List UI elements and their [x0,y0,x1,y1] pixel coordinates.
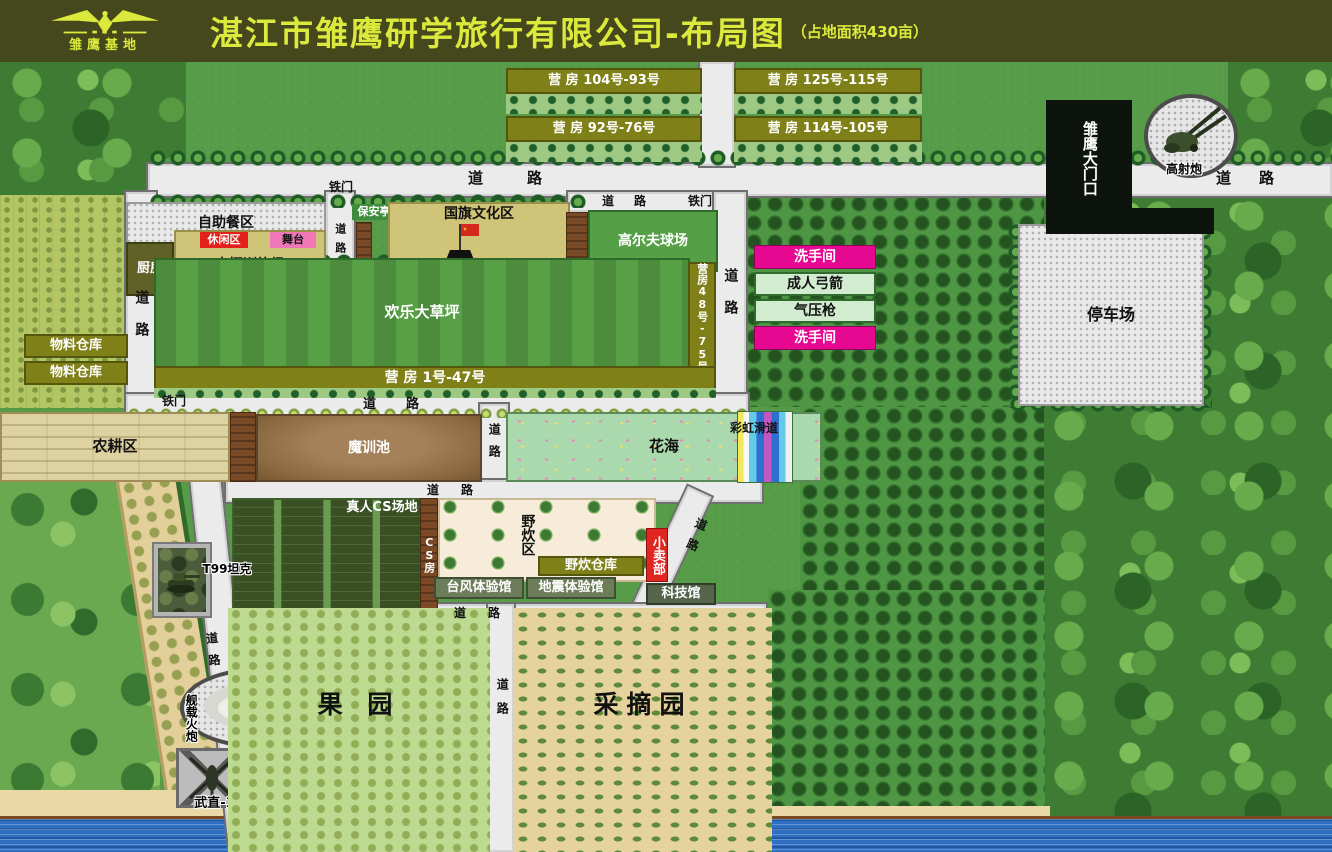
page-subtitle: （占地面积430亩） [792,21,928,42]
road-label-golf: 道路 [590,194,678,209]
china-flag-icon [438,222,482,262]
cs-field-label: 真人CS场地 [330,500,434,516]
stage: 舞台 [270,232,316,248]
road-label-gate: 道路 [1204,168,1314,190]
main-gate: 雏鹰大门口 [1046,100,1132,216]
orchard-rows-mid [800,407,1044,590]
material-store-2: 物料仓库 [24,361,128,385]
road-label-belowlawn: 道路 [348,396,464,413]
road-label-mid: 道路 [484,414,504,476]
picking-garden: 采摘园 [514,608,772,852]
road-label-belowhalls: 道路 [444,605,532,621]
typhoon-hall: 台风体验馆 [434,577,524,599]
layout-map-screenshot: 营 房 104号-93号营 房 92号-76号营 房 125号-115号营 房 … [0,0,1332,852]
adult-archery: 成人弓箭 [754,272,876,296]
road-label-canteen: 道路 [330,214,350,270]
iron-gate-top: 铁门 [322,180,360,195]
barracks-bar-2: 营 房 92号-76号 [506,116,702,142]
wall-farm [230,412,256,482]
road-label-top: 道路 [452,168,602,190]
kiosk: 小卖部 [646,528,668,582]
iron-gate-golf: 铁门 [682,194,718,209]
farming-zone: 农耕区 [0,412,230,482]
earthquake-hall: 地震体验馆 [526,577,616,599]
orchard: 果 园 [228,608,490,852]
barracks-roof-3 [734,94,922,114]
gate-wall [1046,208,1214,234]
road-label-abovecs: 道路 [418,482,504,498]
leisure-zone: 休闲区 [200,232,248,248]
logo-text: 雏鹰基地 [69,39,141,52]
restroom-2: 洗手间 [754,326,876,350]
science-hall: 科技馆 [646,583,716,605]
rainbow-slide-label: 彩虹滑道 [712,420,796,436]
base-logo: 雏鹰基地 [0,10,210,52]
material-store-1: 物料仓库 [24,334,128,358]
page-title: 湛江市雏鹰研学旅行有限公司-布局图 [210,7,786,55]
barracks-1-47: 营 房 1号-47号 [154,366,716,390]
barracks-roof-1 [506,94,702,114]
barracks-bar-3: 营 房 125号-115号 [734,68,922,94]
orchard-rows-bottom [768,590,1045,835]
t99-tank-label: T99坦克 [194,562,260,576]
barracks-bar-1: 营 房 104号-93号 [506,68,702,94]
air-gun: 气压枪 [754,299,876,323]
barracks-roof-2 [506,142,702,162]
base-map: 营 房 104号-93号营 房 92号-76号营 房 125号-115号营 房 … [0,0,1332,852]
naval-gun-label: 舰载火炮 [182,688,200,748]
happy-lawn: 欢乐大草坪 [154,258,690,368]
road-label-rightcol: 道路 [718,256,742,344]
barracks-bar-4: 营 房 114号-105号 [734,116,922,142]
road-label-left: 道路 [130,278,152,366]
restroom-1: 洗手间 [754,245,876,269]
parking-lot: 停车场 [1018,224,1204,406]
title-bar: 雏鹰基地 湛江市雏鹰研学旅行有限公司-布局图 （占地面积430亩） [0,0,1332,62]
aa-gun-icon [1154,100,1230,160]
barracks-48-75: 营房48号-75号 [688,262,716,372]
eagle-logo-icon [49,10,161,37]
iron-gate-belowlawn: 铁门 [156,394,192,409]
barracks-roof-4 [734,142,922,162]
road-label-orchardmid: 道路 [492,672,512,732]
picnic-zone-label: 野炊区 [516,504,538,566]
mud-training-pool: 魔训池 [256,414,482,482]
picnic-warehouse: 野炊仓库 [538,556,644,576]
